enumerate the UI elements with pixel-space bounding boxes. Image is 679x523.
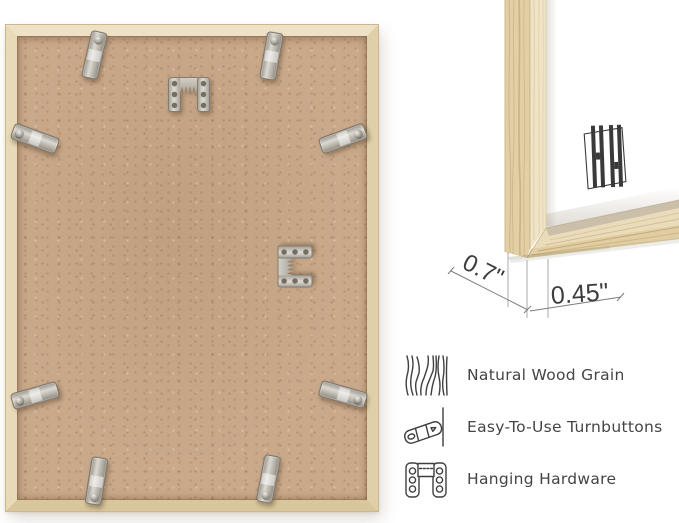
product-infographic: 0.7" 0.45" Natural Wood Grain — [0, 0, 679, 523]
hanger-sawtooth — [278, 258, 295, 276]
wood-grain-icon — [403, 352, 449, 398]
feature-turnbuttons: Easy-To-Use Turnbuttons — [403, 403, 679, 450]
hanger-plate — [168, 77, 181, 112]
feature-label: Natural Wood Grain — [467, 366, 625, 384]
hanger-sawtooth — [180, 77, 198, 94]
sawtooth-hanger — [278, 246, 313, 288]
hanging-hardware-icon — [403, 456, 449, 502]
feature-wood-grain: Natural Wood Grain — [403, 351, 679, 398]
measurement-depth: 0.7" — [458, 249, 508, 292]
hanger-plate — [278, 246, 313, 259]
turnbutton-icon — [403, 404, 449, 450]
mat-shadow — [546, 0, 557, 226]
feature-hanging-hardware: Hanging Hardware — [403, 455, 679, 502]
feature-label: Easy-To-Use Turnbuttons — [467, 418, 662, 436]
measurement-face-width: 0.45" — [550, 278, 609, 310]
feature-legend: Natural Wood Grain Easy-To-Use Turnbutto… — [403, 351, 679, 502]
sawtooth-hanger — [168, 77, 210, 112]
corner-detail: 0.7" 0.45" — [420, 0, 679, 330]
hanger-plate — [197, 77, 210, 112]
hh-monogram-logo — [584, 125, 626, 189]
hanger-plate — [278, 275, 313, 288]
feature-label: Hanging Hardware — [467, 470, 616, 488]
